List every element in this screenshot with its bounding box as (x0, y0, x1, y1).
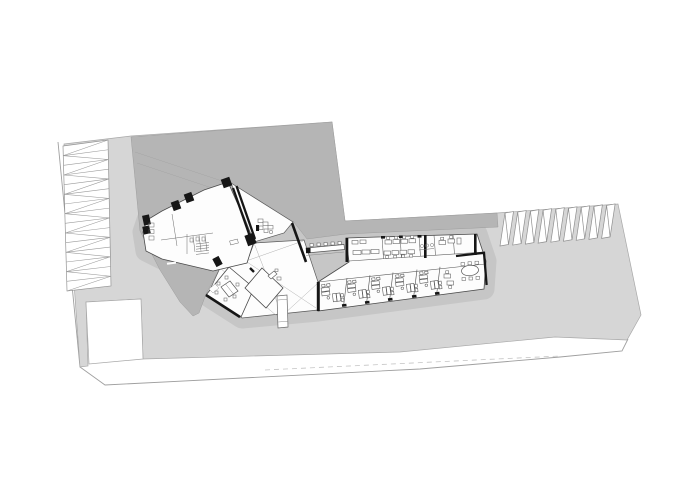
wing-wall-black-left (346, 238, 349, 262)
open-office-desk-3-chair (403, 236, 406, 239)
counter-stool-3 (324, 243, 327, 246)
end-room-desk-1-chair (446, 271, 449, 274)
open-office-desk-7 (400, 250, 407, 254)
seminar-chair-4 (233, 295, 236, 298)
sofa-seat-1 (259, 226, 263, 230)
meeting-chair-2 (468, 262, 472, 265)
open-office-desk-3 (401, 239, 408, 243)
lounge-cabinet (256, 225, 259, 231)
open-office-desk-2 (393, 240, 400, 244)
open-office-desk-4-chair (411, 236, 414, 239)
neighbor-plot (86, 299, 143, 364)
counter-stool-2 (317, 243, 320, 246)
meeting-chair-6 (476, 276, 480, 279)
open-office-desk-1-chair (387, 237, 390, 240)
open-office-desk-5-chair (386, 256, 389, 259)
seminar-chair-6 (215, 291, 218, 294)
end-room-desk-1 (444, 274, 451, 278)
floor-plan-canvas (0, 0, 700, 495)
storage-unit-1 (352, 241, 358, 245)
lower-jamb-4 (412, 295, 417, 298)
wing-jamb-top-3 (418, 235, 422, 238)
curb-dashes (265, 356, 560, 370)
small-office-desk-2-chair (450, 236, 453, 239)
sofa-seat-2 (264, 229, 268, 233)
seminar-chair-3 (236, 283, 239, 286)
open-office-desk-4 (409, 239, 416, 243)
sofa-back-1 (258, 219, 263, 223)
open-office-desk-1 (385, 240, 392, 244)
copy-counter-3 (371, 250, 379, 254)
floor-plan-svg (0, 0, 700, 495)
lower-jamb-3 (388, 298, 393, 301)
head-entry-gap (167, 263, 176, 264)
counter-endcap (306, 248, 311, 253)
open-office-desk-8 (408, 250, 415, 254)
wing-wall-black-1 (424, 235, 427, 258)
counter-stool-5 (338, 242, 341, 245)
small-office-desk-1 (439, 241, 446, 245)
counter-stool-1 (310, 244, 313, 247)
open-office-desk-6 (392, 251, 399, 255)
meeting-chair-4 (462, 278, 466, 281)
ne-room-chair (275, 269, 278, 272)
wing-jamb-top-2 (399, 236, 403, 239)
lower-jamb-5 (435, 292, 440, 295)
ne-room-side (277, 277, 281, 280)
sofa-back-2 (263, 222, 268, 226)
server-cabinet (457, 238, 461, 244)
storage-unit-2 (360, 240, 366, 244)
end-room-desk-2-chair (449, 286, 452, 289)
end-room-desk-2 (447, 281, 454, 285)
sofa-back-3 (268, 226, 273, 230)
meeting-chair-5 (469, 277, 473, 280)
meeting-chair-3 (475, 261, 479, 264)
meeting-chair-1 (461, 263, 465, 266)
seminar-chair-1 (217, 282, 220, 285)
small-office-desk-1-chair (441, 237, 444, 240)
copy-counter-1 (353, 251, 361, 255)
lower-jamb-1 (342, 304, 347, 307)
seminar-chair-5 (224, 298, 227, 301)
open-office-desk-8-chair (410, 255, 413, 258)
open-office-desk-6-chair (394, 255, 397, 258)
wing-wall-black-2 (474, 234, 477, 255)
open-office-desk-7-chair (402, 255, 405, 258)
wing-jamb-top-1 (381, 236, 385, 239)
open-office-desk-5 (384, 251, 391, 255)
lower-jamb-2 (365, 301, 370, 304)
lower-wall-black-left (317, 282, 320, 311)
small-office-desk-2 (448, 239, 455, 243)
copy-counter-2 (362, 250, 370, 254)
open-office-desk-2-chair (395, 236, 398, 239)
seminar-chair-2 (225, 276, 228, 279)
counter-stool-4 (331, 242, 334, 245)
